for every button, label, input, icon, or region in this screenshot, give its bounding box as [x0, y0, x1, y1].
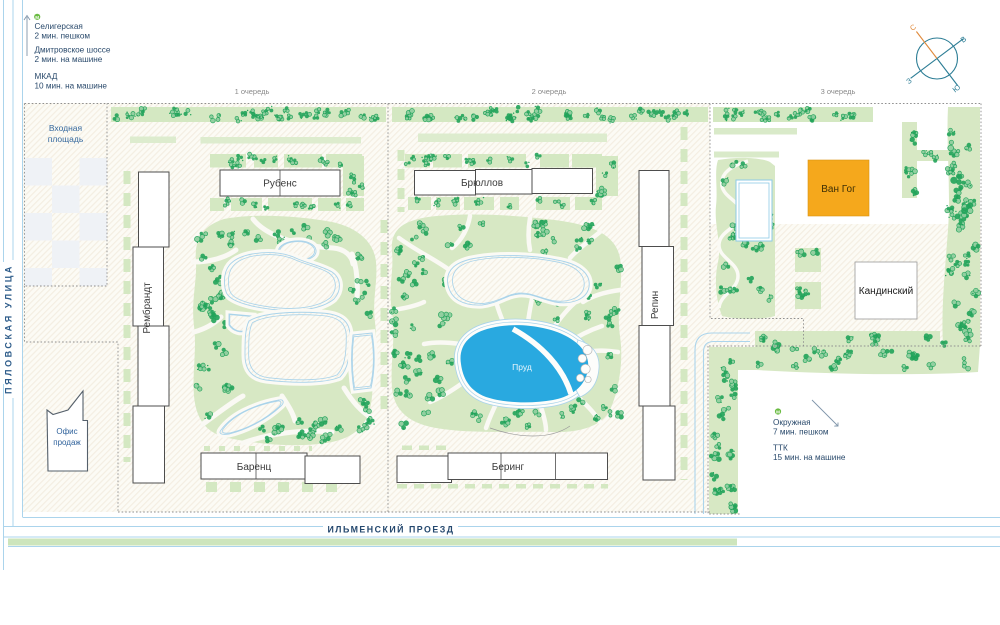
- svg-text:Рембрандт: Рембрандт: [141, 282, 153, 334]
- svg-text:Пруд: Пруд: [512, 362, 532, 372]
- svg-text:продаж: продаж: [53, 438, 81, 447]
- svg-text:Ван Гог: Ван Гог: [821, 184, 856, 195]
- svg-text:Баренц: Баренц: [237, 462, 272, 473]
- svg-text:М: М: [776, 410, 780, 415]
- svg-text:2 мин. на машине: 2 мин. на машине: [35, 55, 103, 64]
- svg-text:ТТК: ТТК: [773, 444, 788, 453]
- svg-text:М: М: [35, 15, 39, 20]
- svg-text:Офис: Офис: [56, 427, 77, 436]
- svg-text:Рубенс: Рубенс: [263, 178, 296, 190]
- svg-text:Брюллов: Брюллов: [461, 178, 503, 189]
- svg-text:2 мин. пешком: 2 мин. пешком: [35, 32, 91, 41]
- svg-text:3 очередь: 3 очередь: [821, 87, 856, 96]
- svg-text:15 мин. на машине: 15 мин. на машине: [773, 453, 846, 462]
- svg-text:7 мин. пешком: 7 мин. пешком: [773, 428, 829, 437]
- svg-text:МКАД: МКАД: [35, 72, 58, 81]
- svg-text:Дмитровское шоссе: Дмитровское шоссе: [35, 46, 111, 55]
- svg-text:Окружная: Окружная: [773, 418, 811, 427]
- svg-text:Беринг: Беринг: [492, 462, 525, 473]
- svg-text:1 очередь: 1 очередь: [235, 87, 270, 96]
- svg-text:2 очередь: 2 очередь: [532, 87, 567, 96]
- svg-text:Входная: Входная: [49, 123, 83, 133]
- svg-text:ИЛЬМЕНСКИЙ ПРОЕЗД: ИЛЬМЕНСКИЙ ПРОЕЗД: [327, 524, 454, 535]
- svg-text:площадь: площадь: [48, 134, 84, 144]
- svg-text:Репин: Репин: [650, 291, 661, 319]
- svg-text:Кандинский: Кандинский: [859, 286, 913, 297]
- svg-text:ПЯЛОВСКАЯ УЛИЦА: ПЯЛОВСКАЯ УЛИЦА: [4, 264, 14, 394]
- svg-text:10 мин. на машине: 10 мин. на машине: [35, 82, 108, 91]
- svg-text:Селигерская: Селигерская: [35, 22, 83, 31]
